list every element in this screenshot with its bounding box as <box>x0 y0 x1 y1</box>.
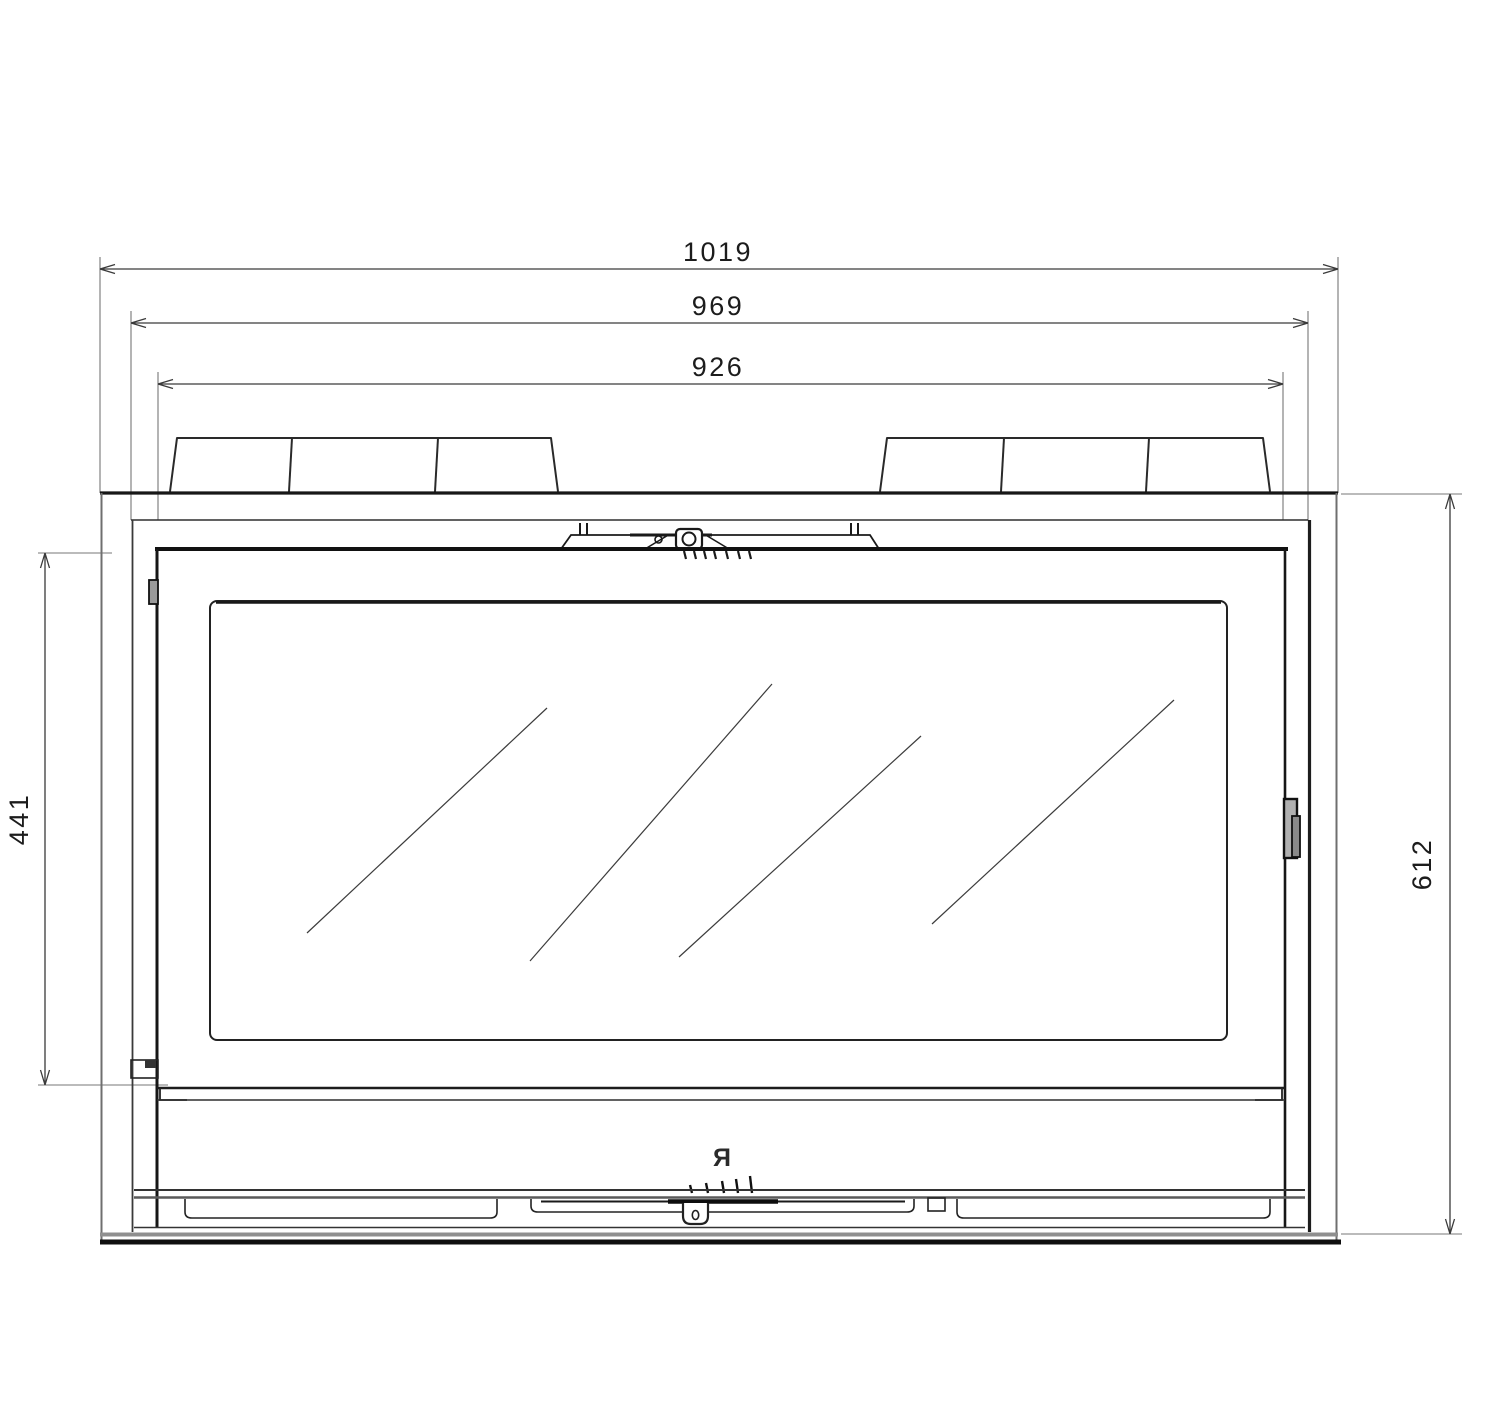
brand-logo-mark: Я <box>713 1144 731 1172</box>
dimension-value-969: 969 <box>692 291 745 321</box>
glass-reflection-line <box>679 736 921 957</box>
vent-block-right-outline <box>880 438 1270 492</box>
door-bottom-step-left <box>160 1088 187 1100</box>
base-plinth <box>100 1228 1341 1243</box>
dimension-frame-width: 969 <box>131 291 1308 520</box>
fascia-frame <box>131 520 1310 1232</box>
hinge-top-left <box>149 580 158 604</box>
vent-block-left-outline <box>170 438 558 492</box>
recessed-panel-right <box>957 1199 1270 1218</box>
dimension-value-441: 441 <box>4 793 34 846</box>
ash-pan-band: Я <box>134 1144 1305 1198</box>
vent-divider <box>1146 438 1149 492</box>
vent-divider <box>435 438 438 492</box>
dimension-door-height: 441 <box>4 553 168 1085</box>
vent-divider <box>1001 438 1004 492</box>
outer-surround-frame <box>100 493 1338 1240</box>
latch-tick-marks <box>684 551 751 559</box>
door-handle-grip <box>1292 816 1300 857</box>
fireplace-insert-front-elevation: 1019 969 926 441 <box>0 0 1500 1427</box>
dimension-value-612: 612 <box>1407 838 1437 891</box>
dimension-value-1019: 1019 <box>683 237 753 267</box>
dimension-firebox-width: 926 <box>158 352 1283 520</box>
recessed-panel-left <box>185 1199 497 1218</box>
dimension-value-926: 926 <box>692 352 745 382</box>
door-bottom-step-right <box>1255 1088 1282 1100</box>
top-latch-assembly <box>561 523 879 559</box>
technical-drawing-page: 1019 969 926 441 <box>0 0 1500 1427</box>
dimension-overall-height: 612 <box>1341 494 1462 1234</box>
top-vent-blocks <box>170 438 1270 492</box>
hinge-bottom-left-pin <box>145 1060 156 1068</box>
dimension-annotations: 1019 969 926 441 <box>4 237 1462 1234</box>
glass-reflection-line <box>932 700 1174 924</box>
latch-plate <box>561 535 879 549</box>
latch-wing-right <box>704 534 729 549</box>
glass-reflection-line <box>307 708 547 933</box>
glass-pane-outline <box>210 601 1227 1040</box>
lower-trim-band <box>185 1198 1270 1224</box>
glass-reflection-line <box>530 684 772 961</box>
vent-divider <box>289 438 292 492</box>
door-assembly <box>131 549 1300 1228</box>
small-latch-block <box>928 1198 945 1211</box>
latch-knob <box>683 533 696 546</box>
glass-reflection-lines <box>307 684 1174 961</box>
air-control-lever <box>683 1203 708 1224</box>
door-glass <box>210 601 1227 1040</box>
fireplace-insert-body: Я <box>100 438 1341 1242</box>
